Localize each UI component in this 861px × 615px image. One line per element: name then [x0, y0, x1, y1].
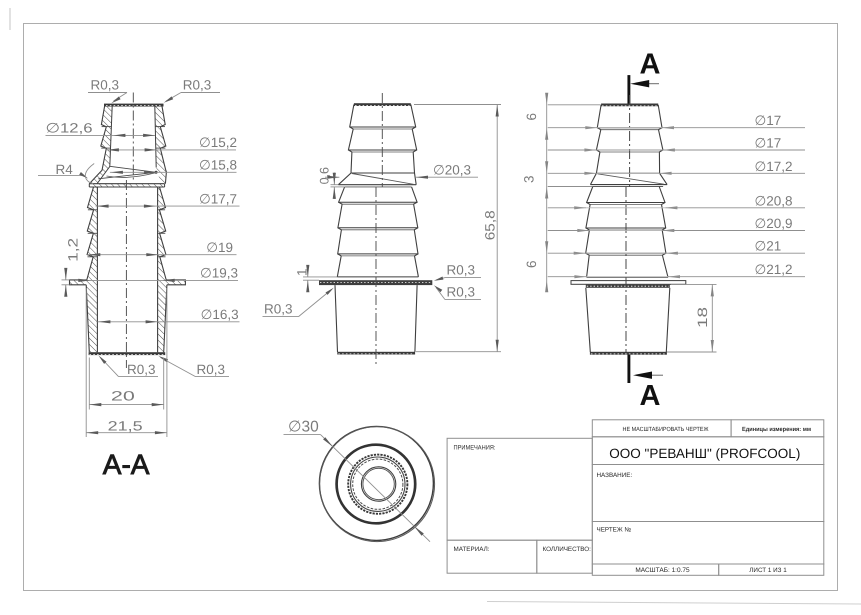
svg-text:ЛИСТ 1 ИЗ 1: ЛИСТ 1 ИЗ 1 [749, 567, 787, 574]
svg-text:R0,3: R0,3 [127, 362, 156, 377]
svg-text:A: A [640, 380, 661, 412]
svg-text:∅21: ∅21 [755, 239, 782, 254]
svg-text:∅12,6: ∅12,6 [46, 121, 93, 136]
svg-text:R0,3: R0,3 [91, 77, 120, 92]
svg-text:КОЛЛИЧЕСТВО:: КОЛЛИЧЕСТВО: [543, 546, 592, 553]
svg-text:∅17: ∅17 [755, 113, 782, 128]
svg-text:МАТЕРИАЛ:: МАТЕРИАЛ: [454, 546, 490, 553]
svg-text:18: 18 [695, 307, 710, 328]
svg-text:∅19,3: ∅19,3 [200, 266, 238, 281]
svg-text:∅15,2: ∅15,2 [199, 135, 237, 150]
svg-text:6: 6 [524, 113, 539, 121]
svg-text:∅15,8: ∅15,8 [199, 158, 237, 173]
svg-text:21,5: 21,5 [108, 418, 143, 433]
svg-text:6: 6 [524, 260, 539, 268]
svg-text:МАСШТАБ: 1:0.75: МАСШТАБ: 1:0.75 [635, 567, 690, 574]
svg-text:A: A [640, 49, 661, 81]
svg-text:∅19: ∅19 [206, 240, 233, 255]
svg-text:R0,3: R0,3 [183, 77, 212, 92]
svg-text:R4: R4 [56, 162, 74, 177]
svg-text:R0,3: R0,3 [197, 362, 226, 377]
svg-text:R0,3: R0,3 [264, 302, 293, 317]
svg-text:ПРИМЕЧАНИЯ:: ПРИМЕЧАНИЯ: [454, 445, 496, 452]
svg-text:∅17: ∅17 [755, 136, 782, 151]
svg-text:20: 20 [111, 388, 135, 403]
svg-text:∅17,2: ∅17,2 [755, 159, 793, 174]
svg-text:R0,3: R0,3 [447, 263, 476, 278]
svg-text:∅21,2: ∅21,2 [755, 262, 793, 277]
svg-text:0,6: 0,6 [318, 167, 332, 184]
svg-text:A-A: A-A [103, 449, 150, 480]
svg-text:ЧЕРТЕЖ №: ЧЕРТЕЖ № [597, 527, 632, 534]
svg-text:3: 3 [522, 175, 537, 183]
svg-text:НАЗВАНИЕ:: НАЗВАНИЕ: [597, 472, 633, 479]
svg-text:∅17,7: ∅17,7 [199, 191, 237, 206]
svg-text:ООО "РЕВАНШ" (PROFCOOL): ООО "РЕВАНШ" (PROFCOOL) [609, 446, 800, 461]
svg-text:∅20,8: ∅20,8 [755, 193, 793, 208]
svg-text:∅20,9: ∅20,9 [755, 216, 793, 231]
svg-text:∅16,3: ∅16,3 [201, 307, 239, 322]
svg-text:R0,3: R0,3 [447, 285, 476, 300]
svg-text:∅30: ∅30 [288, 419, 319, 436]
svg-text:Единицы измерения: мм: Единицы измерения: мм [742, 426, 812, 433]
svg-text:1,2: 1,2 [66, 238, 81, 262]
svg-text:∅20,3: ∅20,3 [433, 163, 471, 178]
svg-text:НЕ МАСШТАБИРОВАТЬ ЧЕРТЕЖ: НЕ МАСШТАБИРОВАТЬ ЧЕРТЕЖ [623, 426, 709, 433]
svg-text:65,8: 65,8 [483, 210, 498, 240]
